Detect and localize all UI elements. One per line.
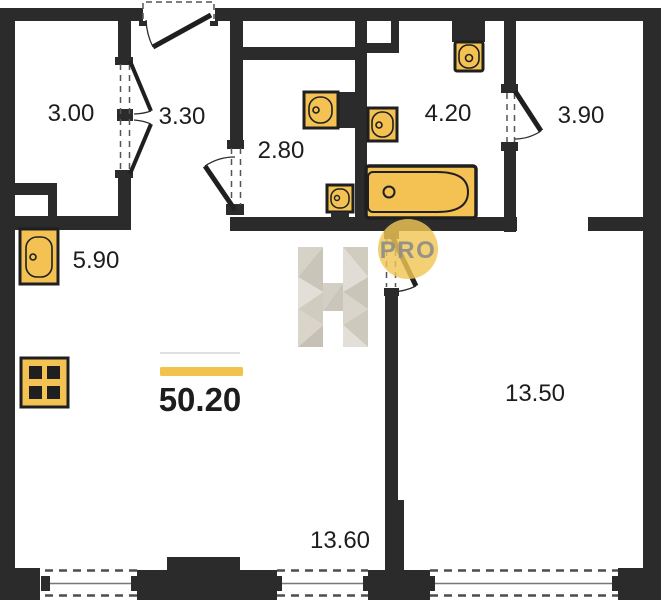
floor-plan: PRO 3.00 3.30 2.80 4.20 3.90 5.90 13.50 … xyxy=(0,0,667,600)
area-label-4-20: 4.20 xyxy=(403,100,493,128)
area-label-2-80: 2.80 xyxy=(236,137,326,165)
area-label-5-90: 5.90 xyxy=(51,247,141,275)
window xyxy=(273,571,372,596)
window xyxy=(41,571,140,596)
entrance-door xyxy=(143,2,214,47)
area-label-3-30: 3.30 xyxy=(137,103,227,131)
window xyxy=(426,571,621,596)
area-label-3-90: 3.90 xyxy=(536,102,626,130)
plan-symbols-layer: PRO xyxy=(0,0,667,600)
total-area-label: 50.20 xyxy=(140,383,260,417)
watermark-guide-line xyxy=(160,352,240,354)
watermark-h-logo xyxy=(298,247,368,347)
stove-icon xyxy=(21,358,68,407)
sink-icon xyxy=(304,92,357,128)
pro-badge-text: PRO xyxy=(380,237,437,264)
total-area-underline xyxy=(160,367,243,376)
sink-icon xyxy=(368,108,397,141)
area-label-3-00: 3.00 xyxy=(26,100,116,128)
area-label-13-50: 13.50 xyxy=(485,380,585,408)
area-label-13-60: 13.60 xyxy=(290,527,390,555)
toilet-icon xyxy=(452,21,485,71)
toilet-icon xyxy=(327,185,353,218)
watermark-pro-badge: PRO xyxy=(378,219,438,279)
bathtub-icon xyxy=(366,166,476,218)
